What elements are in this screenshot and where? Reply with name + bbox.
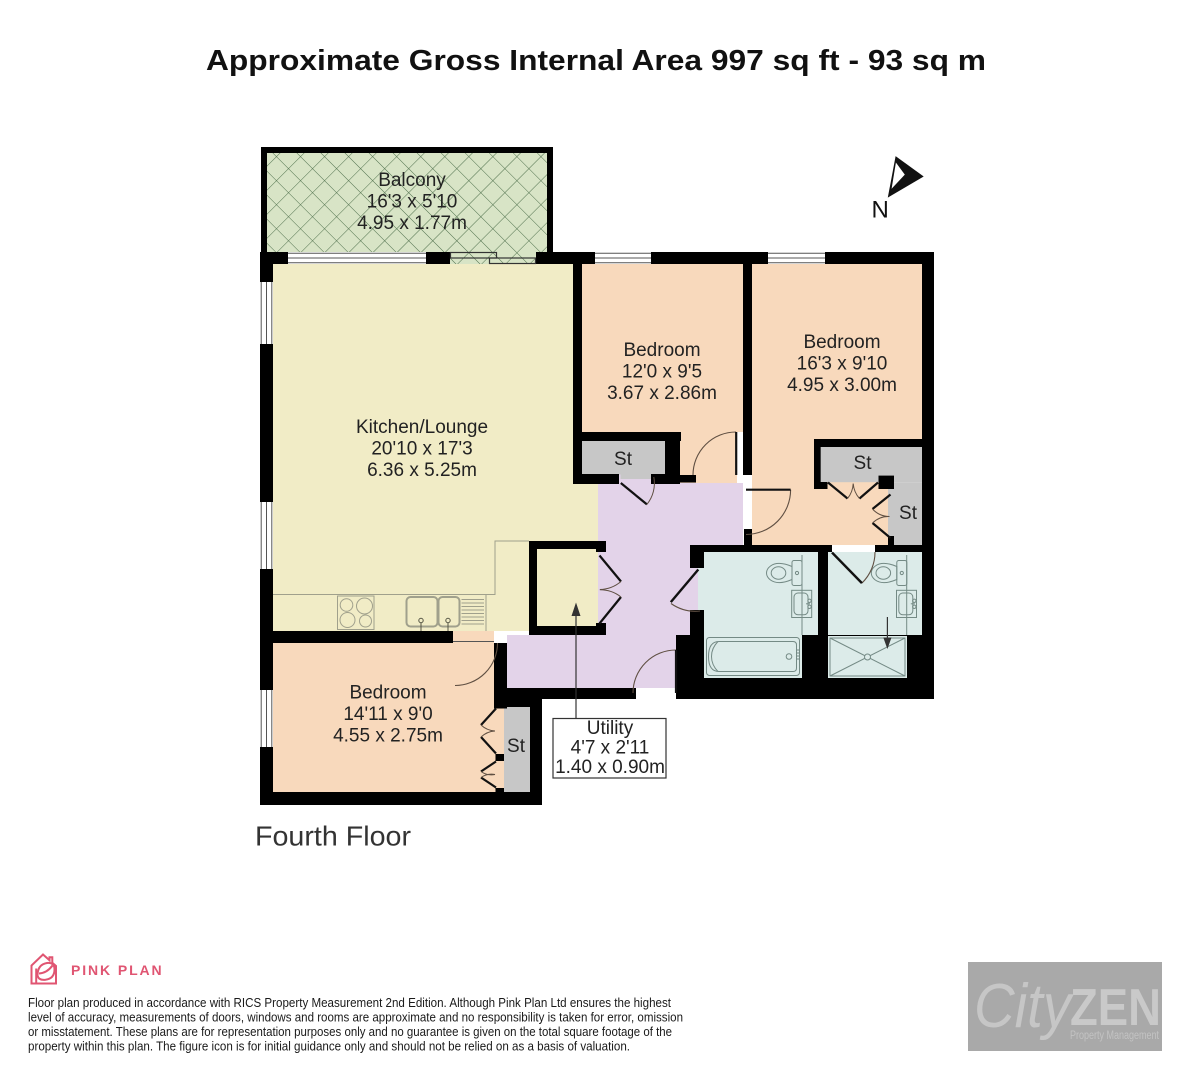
svg-text:City: City	[974, 972, 1075, 1041]
svg-text:12'0 x 9'5: 12'0 x 9'5	[622, 362, 702, 383]
svg-text:Property Management: Property Management	[1070, 1030, 1160, 1042]
svg-text:level of accuracy, measurement: level of accuracy, measurements of doors…	[28, 1011, 683, 1025]
svg-text:Kitchen/Lounge: Kitchen/Lounge	[356, 417, 488, 438]
svg-text:Fourth Floor: Fourth Floor	[255, 821, 411, 852]
svg-text:14'11 x 9'0: 14'11 x 9'0	[343, 704, 432, 725]
svg-text:ZEN: ZEN	[1070, 979, 1161, 1037]
svg-text:St: St	[507, 736, 526, 757]
svg-text:4.95 x 1.77m: 4.95 x 1.77m	[357, 213, 467, 234]
svg-text:St: St	[614, 449, 633, 470]
svg-text:Utility: Utility	[587, 718, 634, 739]
svg-text:4'7 x 2'11: 4'7 x 2'11	[571, 738, 650, 759]
svg-text:Bedroom: Bedroom	[349, 683, 426, 704]
svg-text:Floor plan produced in accorda: Floor plan produced in accordance with R…	[28, 996, 671, 1010]
svg-text:St: St	[854, 453, 873, 474]
svg-text:16'3 x 5'10: 16'3 x 5'10	[367, 192, 458, 213]
svg-text:4.95 x 3.00m: 4.95 x 3.00m	[787, 375, 897, 396]
svg-text:20'10 x 17'3: 20'10 x 17'3	[371, 439, 472, 460]
svg-text:property within this plan. The: property within this plan. The figure ic…	[28, 1040, 630, 1054]
svg-text:Bedroom: Bedroom	[803, 332, 880, 353]
svg-text:PINK PLAN: PINK PLAN	[71, 962, 164, 978]
svg-text:4.55 x 2.75m: 4.55 x 2.75m	[333, 726, 443, 747]
svg-text:1.40 x 0.90m: 1.40 x 0.90m	[555, 757, 665, 778]
svg-text:Approximate Gross Internal Are: Approximate Gross Internal Area 997 sq f…	[206, 45, 986, 77]
svg-text:or misstatement. These plans a: or misstatement. These plans are for rep…	[28, 1025, 672, 1039]
svg-text:6.36 x 5.25m: 6.36 x 5.25m	[367, 460, 477, 481]
svg-text:St: St	[899, 503, 918, 524]
svg-text:Bedroom: Bedroom	[623, 340, 700, 361]
svg-text:3.67 x 2.86m: 3.67 x 2.86m	[607, 383, 717, 404]
svg-text:N: N	[872, 197, 889, 224]
svg-text:16'3 x 9'10: 16'3 x 9'10	[797, 354, 888, 375]
svg-text:Balcony: Balcony	[378, 170, 446, 191]
